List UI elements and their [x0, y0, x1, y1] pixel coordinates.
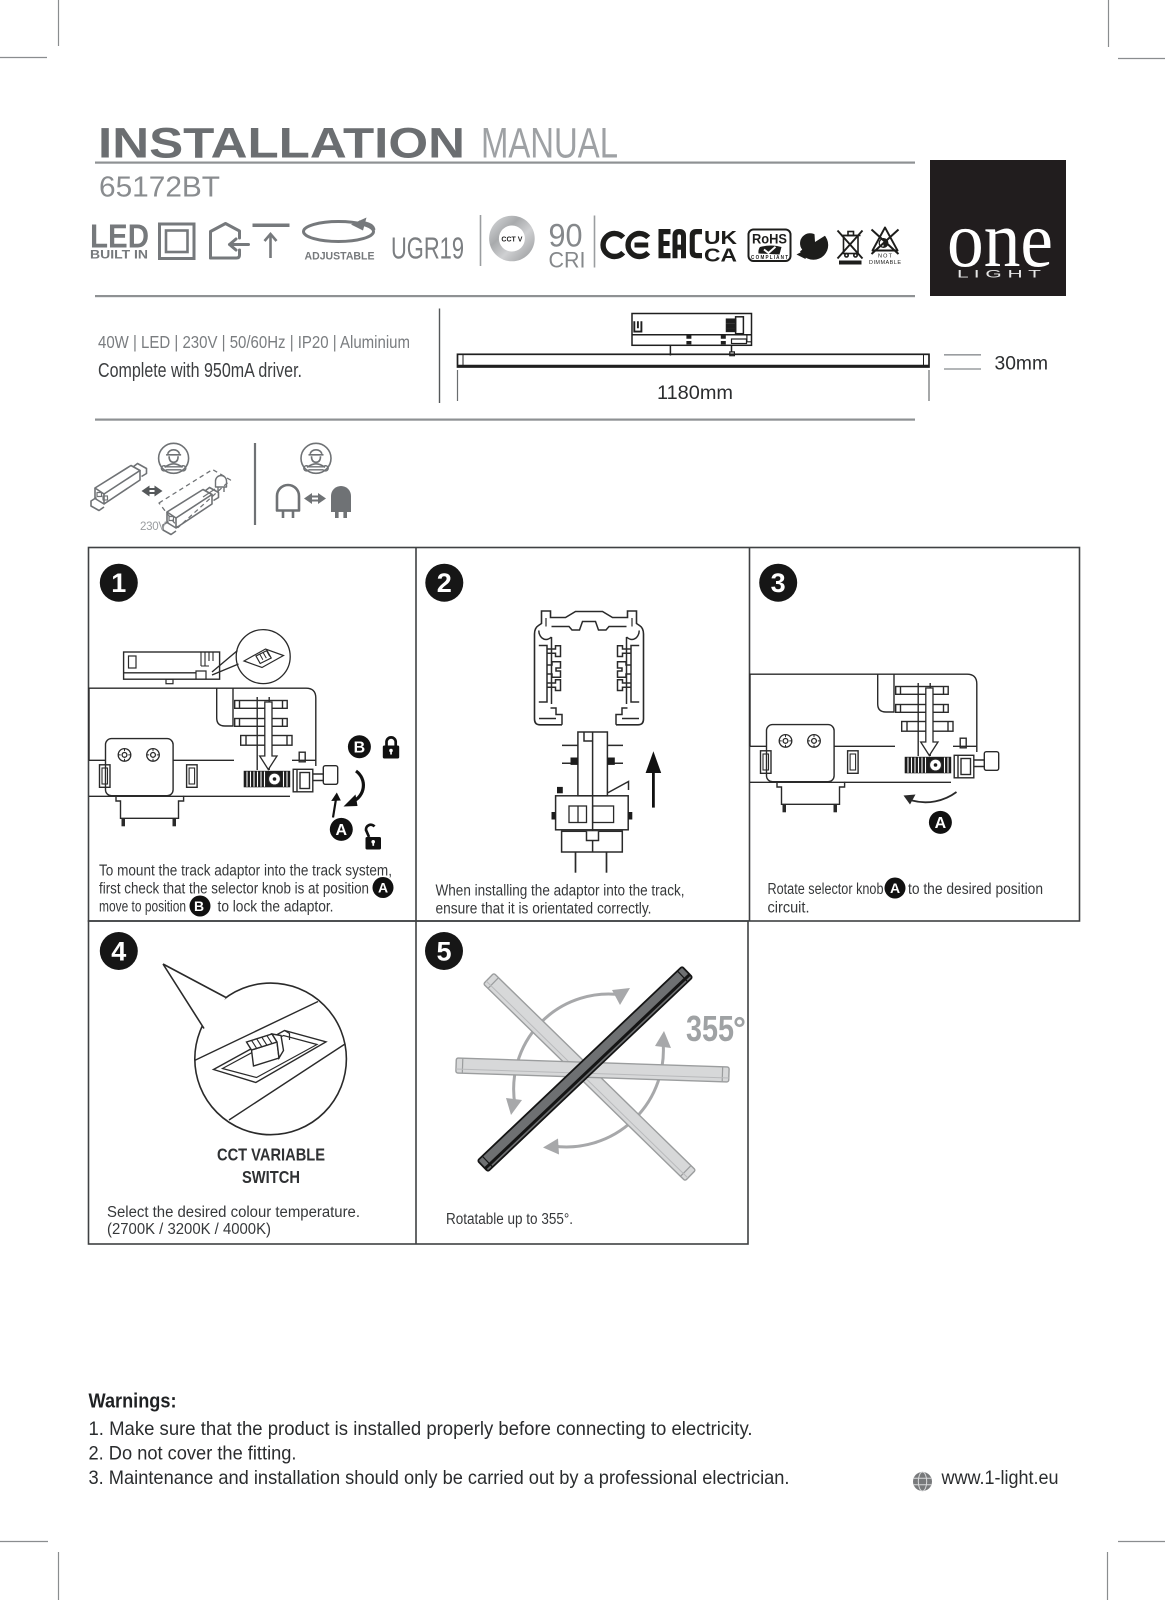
svg-text:1: 1: [111, 568, 126, 598]
svg-text:To mount the track adaptor int: To mount the track adaptor into the trac…: [99, 863, 392, 880]
svg-text:3. Maintenance and installatio: 3. Maintenance and installation should o…: [89, 1467, 790, 1489]
svg-text:3: 3: [771, 568, 786, 598]
svg-text:RoHS: RoHS: [752, 232, 787, 247]
svg-text:move to position: move to position: [99, 899, 186, 916]
svg-text:Rotate selector knob: Rotate selector knob: [768, 881, 884, 898]
svg-text:65172BT: 65172BT: [99, 172, 220, 204]
svg-text:B: B: [354, 740, 366, 757]
svg-text:A: A: [935, 815, 947, 832]
svg-text:2: 2: [437, 568, 452, 598]
svg-text:DIMMABLE: DIMMABLE: [869, 260, 901, 266]
svg-text:230V: 230V: [140, 521, 166, 533]
svg-text:B: B: [194, 898, 204, 914]
svg-text:A: A: [890, 880, 900, 896]
svg-text:ADJUSTABLE: ADJUSTABLE: [305, 251, 375, 263]
svg-text:CCT VARIABLE: CCT VARIABLE: [217, 1145, 325, 1165]
svg-text:40W | LED | 230V | 50/60: 40W | LED | 230V | 50/60Hz | IP20 | Alum…: [98, 332, 410, 352]
svg-text:2. Do not cover the fitting.: 2. Do not cover the fitting.: [89, 1443, 297, 1465]
svg-text:BUILT IN: BUILT IN: [90, 250, 148, 262]
svg-text:A: A: [336, 822, 348, 839]
svg-text:355: 355: [686, 1008, 734, 1049]
svg-text:L I G H T: L I G H T: [957, 269, 1042, 281]
svg-text:Select the desired colour tem: Select the desired colour temperature.: [107, 1204, 360, 1221]
svg-text:30mm: 30mm: [995, 353, 1049, 375]
svg-text:ensure that it is orientated c: ensure that it is orientated correctly.: [436, 901, 652, 918]
svg-text:to the desired position: to the desired position: [908, 881, 1043, 898]
svg-text:CRI: CRI: [549, 248, 586, 273]
svg-text:When installing the adaptor in: When installing the adaptor into the tra…: [436, 883, 685, 900]
svg-text:MANUAL: MANUAL: [481, 120, 618, 168]
svg-text:Warnings:: Warnings:: [89, 1391, 177, 1413]
svg-text:INSTALLATION: INSTALLATION: [98, 120, 465, 168]
svg-text:(2700K / 3200K / 4000K): (2700K / 3200K / 4000K): [107, 1221, 271, 1238]
svg-text:A: A: [378, 880, 388, 896]
svg-text:www.1-light.eu: www.1-light.eu: [941, 1467, 1059, 1489]
svg-text:NOT: NOT: [878, 254, 893, 260]
svg-text:1180mm: 1180mm: [657, 382, 733, 404]
svg-text:first check that the selector: first check that the selector knob is at…: [99, 881, 369, 898]
svg-text:Rotatable up to 355°.: Rotatable up to 355°.: [446, 1211, 573, 1228]
svg-text:circuit.: circuit.: [768, 900, 810, 917]
svg-text:CCT V: CCT V: [501, 235, 522, 244]
svg-text:C O M P L I A N T: C O M P L I A N T: [751, 255, 788, 261]
svg-text:SWITCH: SWITCH: [242, 1167, 300, 1187]
svg-text:CA: CA: [704, 245, 737, 266]
svg-text:Complete with 950mA driver.: Complete with 950mA driver.: [98, 360, 302, 382]
svg-text:5: 5: [436, 937, 451, 967]
svg-text:to lock the adaptor.: to lock the adaptor.: [218, 899, 334, 916]
svg-text:4: 4: [111, 937, 126, 967]
svg-text:UGR19: UGR19: [391, 231, 464, 266]
svg-text:1. Make sure that the product: 1. Make sure that the product is install…: [89, 1418, 753, 1440]
